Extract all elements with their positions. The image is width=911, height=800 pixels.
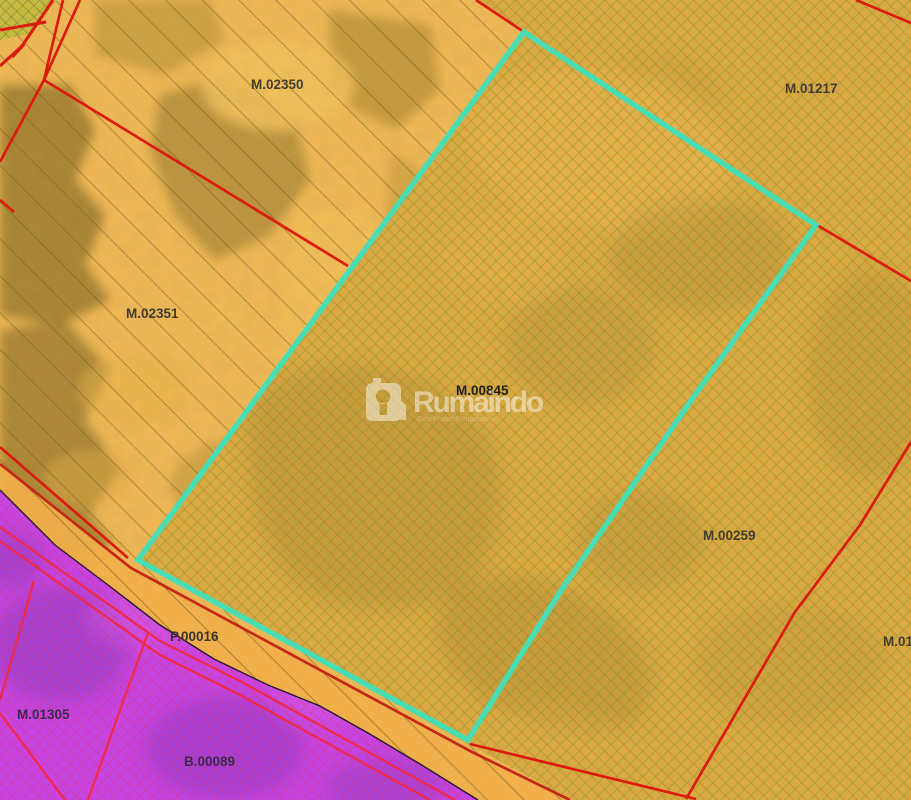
- svg-text:M.013: M.013: [883, 634, 911, 649]
- svg-text:M.01217: M.01217: [785, 81, 838, 96]
- svg-text:M.02350: M.02350: [251, 77, 304, 92]
- svg-text:M.00259: M.00259: [703, 528, 756, 543]
- svg-text:Cari Properti Impianmu: Cari Properti Impianmu: [417, 414, 494, 423]
- svg-text:B.00089: B.00089: [184, 754, 235, 769]
- svg-text:P.00016: P.00016: [170, 629, 219, 644]
- svg-text:M.02351: M.02351: [126, 306, 179, 321]
- svg-text:M.01305: M.01305: [17, 707, 70, 722]
